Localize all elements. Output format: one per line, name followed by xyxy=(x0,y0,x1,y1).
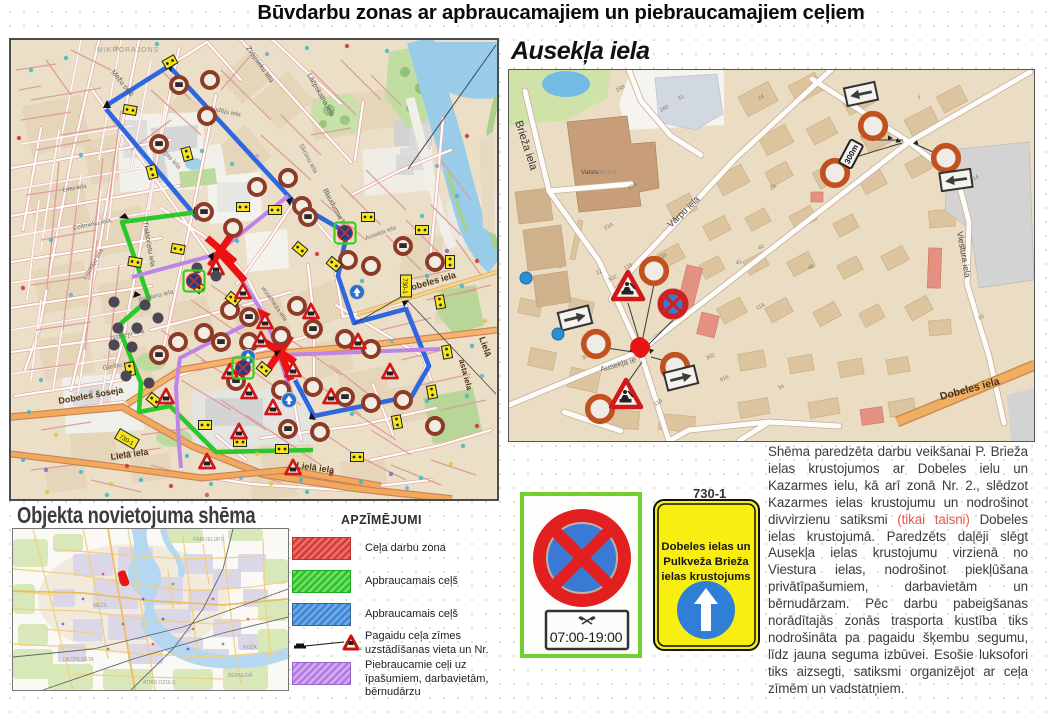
svg-text:Dobeles ielas un: Dobeles ielas un xyxy=(661,541,750,553)
svg-text:ATIKS OZOLS: ATIKS OZOLS xyxy=(143,680,176,686)
svg-text:BĒRNUDĀ: BĒRNUDĀ xyxy=(228,672,253,679)
svg-text:ROŽA: ROŽA xyxy=(243,643,258,651)
svg-text:PĀRLIELUPS: PĀRLIELUPS xyxy=(193,536,225,543)
svg-text:118: 118 xyxy=(359,646,362,651)
svg-text:Valstsarhīvs: Valstsarhīvs xyxy=(581,169,617,176)
svg-text:LIETPILSĒTA: LIETPILSĒTA xyxy=(63,656,94,663)
svg-text:Pulkveža Brieža: Pulkveža Brieža xyxy=(663,556,749,568)
svg-text:07:00-19:00: 07:00-19:00 xyxy=(550,630,623,646)
svg-text:MIKRORAJONS: MIKRORAJONS xyxy=(97,47,159,54)
svg-text:MEŽS: MEŽS xyxy=(93,601,108,609)
